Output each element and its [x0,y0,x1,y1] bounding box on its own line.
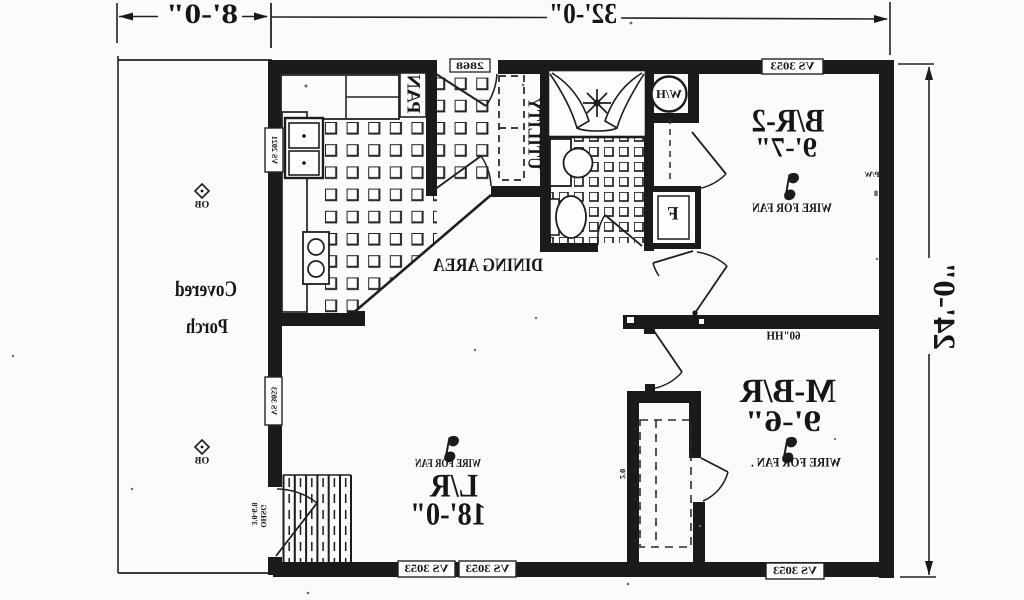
svg-text:3'0-6'8: 3'0-6'8 [250,502,259,525]
svg-text:18'-0": 18'-0" [410,495,486,531]
svg-text:VS 3053: VS 3053 [465,563,510,575]
svg-text:DINING AREA: DINING AREA [433,255,543,276]
svg-text:OB: OB [194,199,209,210]
svg-text:60"HH: 60"HH [766,328,801,342]
svg-text:24'-0": 24'-0" [927,262,962,350]
svg-text:P/W: P/W [864,170,879,179]
svg-text:2868: 2868 [456,61,484,72]
svg-text:VS 3053: VS 3053 [404,563,449,575]
svg-text:VS 3053: VS 3053 [772,565,817,577]
svg-text:2'0: 2'0 [618,469,627,479]
svg-text:Porch: Porch [186,314,228,338]
svg-text:9'-7": 9'-7" [755,132,817,163]
svg-text:F: F [667,203,679,224]
svg-text:9'-6": 9'-6" [745,405,821,438]
svg-text:WIRE FOR FAN: WIRE FOR FAN [751,200,832,215]
svg-text:PAN: PAN [403,74,424,113]
svg-text:OB: OB [194,455,209,466]
svg-text:VS 2021: VS 2021 [270,136,279,164]
svg-text:Covered: Covered [175,276,237,301]
svg-text:8'-0": 8'-0" [166,0,238,30]
svg-text:32'-0": 32'-0" [549,0,617,30]
svg-text:VS 3053: VS 3053 [270,387,279,415]
svg-text:UTILITY: UTILITY [524,98,544,170]
svg-text:8: 8 [874,189,878,198]
svg-text:W/H: W/H [655,87,682,101]
svg-text:WIRE FOR FAN .: WIRE FOR FAN . [751,454,841,469]
svg-text:VS 3053: VS 3053 [770,61,815,73]
svg-text:OHSG: OHSG [259,504,268,527]
